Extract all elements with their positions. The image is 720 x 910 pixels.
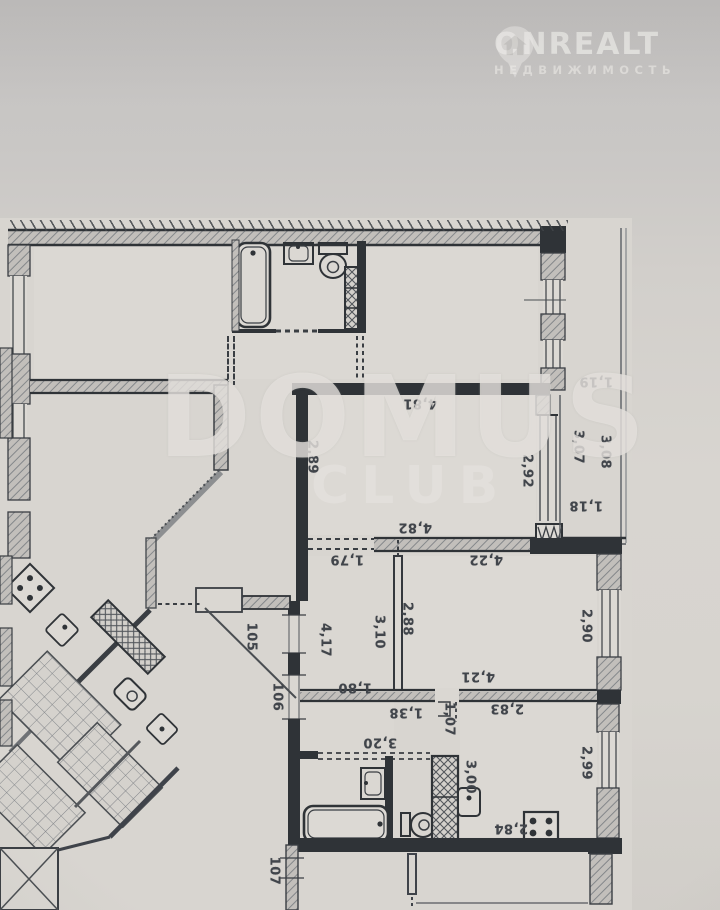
right-exterior-wall-lower — [597, 554, 621, 838]
bedroom-partition — [394, 556, 402, 690]
floor-plan-drawing — [0, 0, 720, 910]
floor-plan-photo: { "watermarks": { "domus": { "title": "D… — [0, 0, 720, 910]
bathroom-divider-wall — [357, 241, 366, 332]
stove — [524, 812, 558, 842]
kitchen — [524, 812, 558, 842]
window — [10, 276, 27, 354]
balcony-window — [537, 415, 558, 521]
door-gap — [435, 688, 459, 703]
bathtub — [237, 243, 270, 327]
bathtub — [304, 806, 388, 842]
window — [599, 732, 619, 788]
sink — [458, 788, 480, 816]
window — [543, 280, 563, 314]
stairwell — [0, 848, 58, 910]
window — [543, 340, 563, 368]
door-opening-105 — [289, 615, 299, 653]
ventilation-shaft — [432, 756, 458, 840]
plan-photo-container: 4,812,892,921,193,073,081,184,821,794,22… — [0, 0, 720, 910]
window — [599, 590, 621, 657]
